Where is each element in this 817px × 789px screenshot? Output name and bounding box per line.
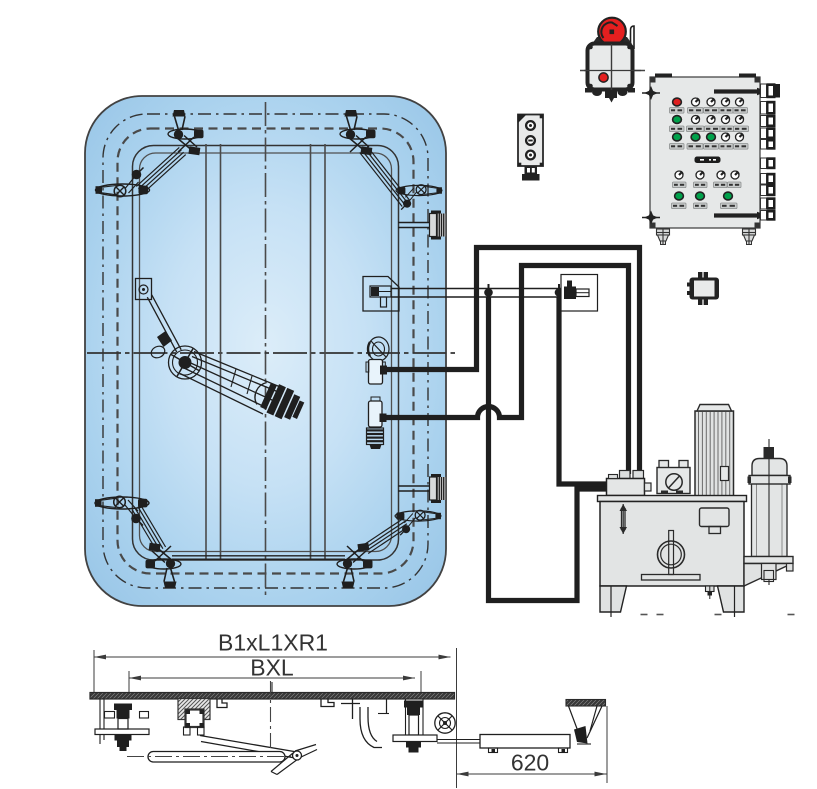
svg-text:BXL: BXL — [250, 655, 294, 681]
svg-text:620: 620 — [511, 750, 549, 776]
svg-text:B1xL1XR1: B1xL1XR1 — [218, 630, 328, 656]
